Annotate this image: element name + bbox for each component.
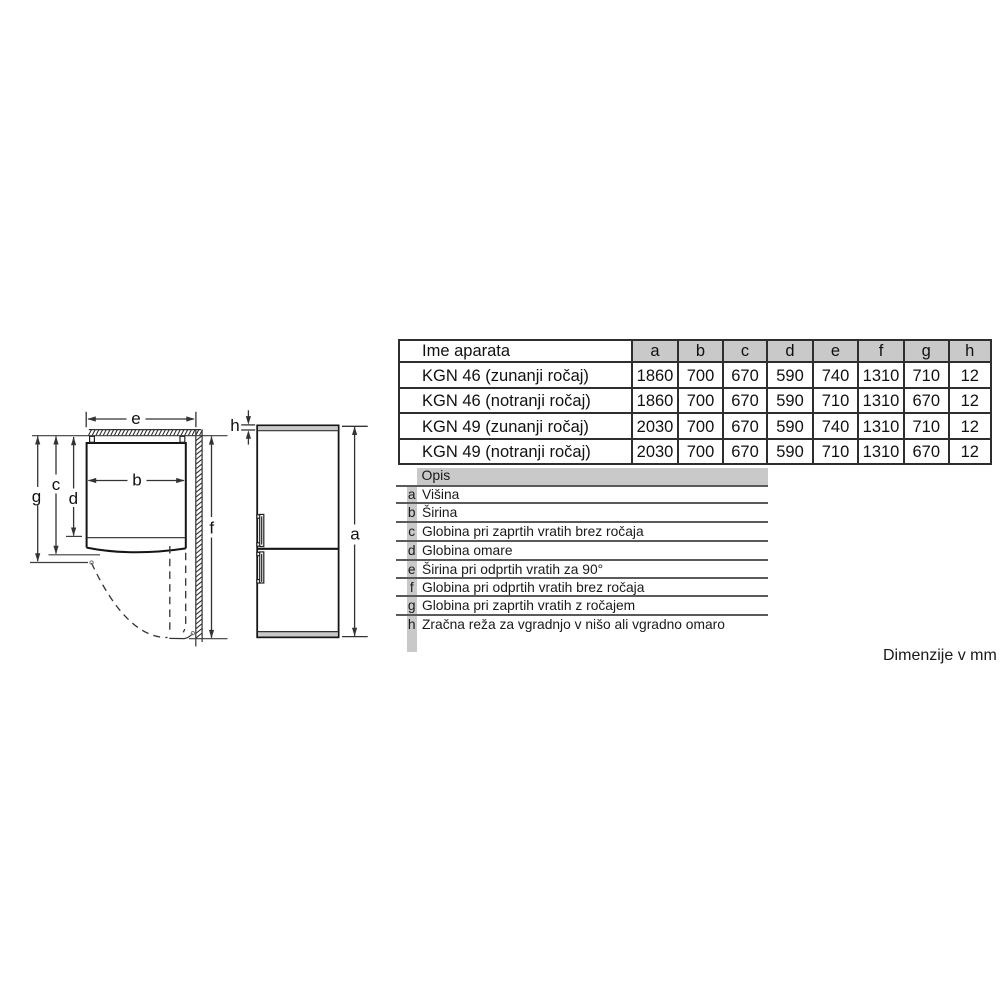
- svg-text:d: d: [69, 489, 78, 508]
- svg-text:b: b: [132, 471, 141, 490]
- svg-text:g: g: [32, 487, 41, 506]
- svg-text:e: e: [131, 409, 140, 428]
- svg-text:f: f: [209, 519, 214, 538]
- svg-text:a: a: [350, 525, 360, 544]
- svg-text:c: c: [52, 475, 61, 494]
- svg-text:h: h: [230, 416, 239, 435]
